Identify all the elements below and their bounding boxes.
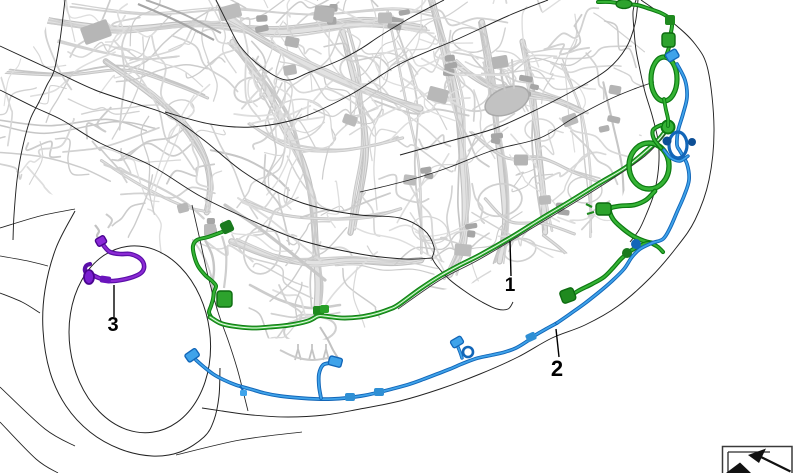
svg-text:3: 3 <box>107 314 118 336</box>
svg-text:1: 1 <box>505 275 516 296</box>
svg-text:2: 2 <box>551 356 563 381</box>
